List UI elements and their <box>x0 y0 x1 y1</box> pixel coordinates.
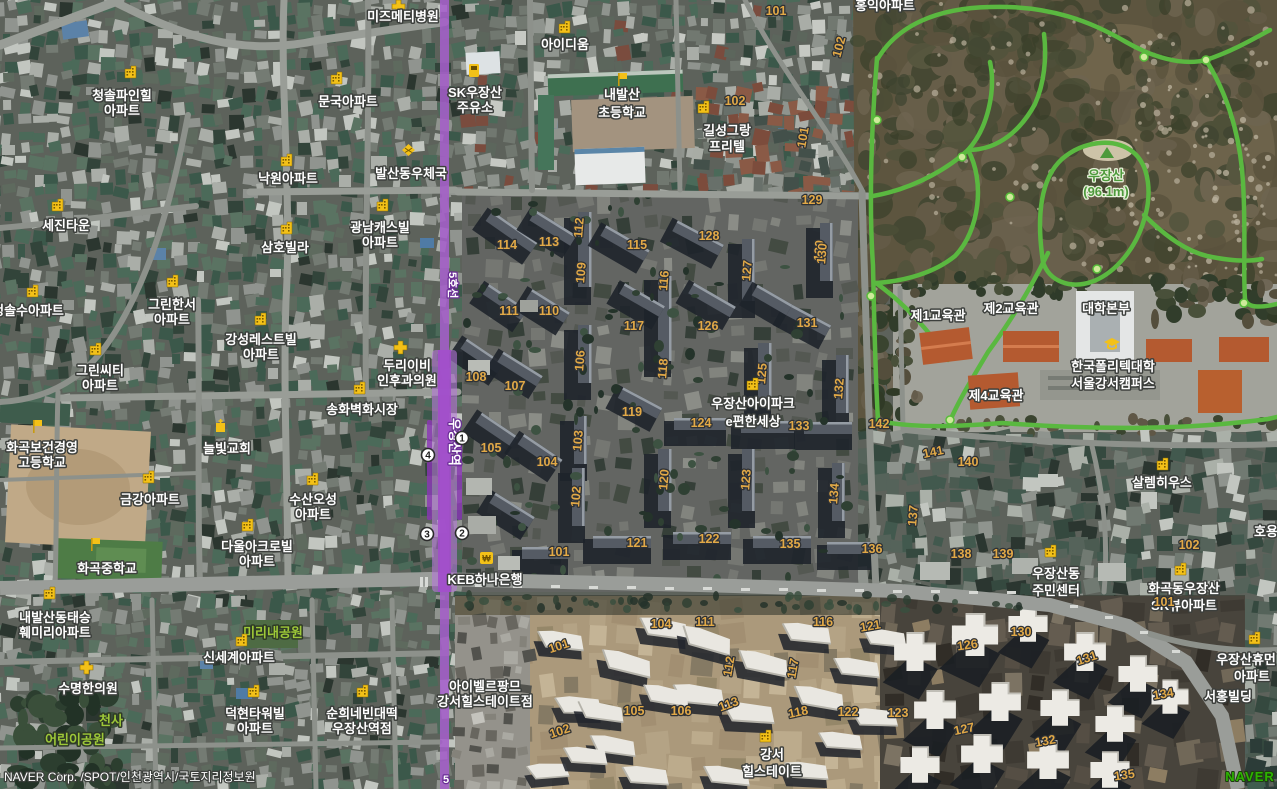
svg-text:118: 118 <box>655 358 671 379</box>
svg-text:천사: 천사 <box>99 713 123 728</box>
svg-text:135: 135 <box>1113 767 1136 784</box>
svg-text:136: 136 <box>862 542 883 556</box>
svg-text:그린한서: 그린한서 <box>148 297 196 312</box>
svg-text:서울강서캠퍼스: 서울강서캠퍼스 <box>1071 376 1155 391</box>
svg-text:101: 101 <box>766 4 787 18</box>
svg-text:123: 123 <box>738 469 754 491</box>
svg-text:발산동우체국: 발산동우체국 <box>375 166 447 181</box>
svg-text:우장산휴먼: 우장산휴먼 <box>1216 652 1276 667</box>
svg-text:대학본부: 대학본부 <box>1082 301 1130 316</box>
svg-text:아이디움: 아이디움 <box>541 37 589 52</box>
svg-text:130: 130 <box>814 243 830 265</box>
svg-text:1: 1 <box>459 434 465 445</box>
svg-text:강서힐스테이트점: 강서힐스테이트점 <box>437 694 533 709</box>
svg-text:서홍빌딩: 서홍빌딩 <box>1204 689 1252 704</box>
svg-text:청솔파인힐: 청솔파인힐 <box>92 88 152 103</box>
svg-text:NAVER: NAVER <box>1225 769 1275 784</box>
svg-text:109: 109 <box>573 262 589 284</box>
svg-text:132: 132 <box>831 378 847 400</box>
svg-text:5호선: 5호선 <box>446 272 460 298</box>
svg-text:주민센터: 주민센터 <box>1032 583 1080 598</box>
svg-text:화곡보건경영: 화곡보건경영 <box>6 440 78 455</box>
svg-text:2: 2 <box>459 529 465 540</box>
svg-text:112: 112 <box>571 217 587 238</box>
svg-text:호용: 호용 <box>1254 524 1277 539</box>
svg-text:미리내공원: 미리내공원 <box>243 625 303 640</box>
svg-text:내발산동태승: 내발산동태승 <box>19 610 91 625</box>
svg-text:113: 113 <box>539 235 559 249</box>
svg-text:122: 122 <box>699 532 720 546</box>
svg-text:142: 142 <box>869 417 890 431</box>
svg-text:화곡중학교: 화곡중학교 <box>77 561 137 576</box>
svg-text:세진타운: 세진타운 <box>42 218 90 233</box>
svg-text:108: 108 <box>466 370 487 384</box>
svg-text:고등학교: 고등학교 <box>18 455 66 470</box>
svg-text:(96.1m): (96.1m) <box>1083 184 1129 199</box>
svg-text:홍익아파트: 홍익아파트 <box>855 0 915 13</box>
svg-text:내발산: 내발산 <box>604 87 640 102</box>
svg-text:135: 135 <box>780 537 801 551</box>
svg-text:126: 126 <box>956 637 979 654</box>
svg-text:강서: 강서 <box>760 747 784 762</box>
svg-text:101: 101 <box>549 545 570 559</box>
svg-text:아파트: 아파트 <box>1234 669 1270 684</box>
svg-text:104: 104 <box>651 617 672 631</box>
svg-text:137: 137 <box>905 505 921 527</box>
svg-text:117: 117 <box>624 319 644 333</box>
svg-text:송화벽화시장: 송화벽화시장 <box>326 402 398 417</box>
svg-text:미즈메티병원: 미즈메티병원 <box>367 9 439 24</box>
svg-text:121: 121 <box>627 536 648 550</box>
svg-text:우장산아이파크: 우장산아이파크 <box>711 396 795 411</box>
svg-text:123: 123 <box>888 706 909 720</box>
svg-text:청솔수아파트: 청솔수아파트 <box>0 303 64 318</box>
svg-text:120: 120 <box>656 469 672 491</box>
svg-text:134: 134 <box>826 483 842 505</box>
svg-text:138: 138 <box>951 547 972 561</box>
svg-text:제2교육관: 제2교육관 <box>983 301 1038 316</box>
svg-text:114: 114 <box>497 238 517 252</box>
svg-text:그린씨티: 그린씨티 <box>76 363 124 378</box>
svg-text:111: 111 <box>499 304 519 318</box>
svg-text:아파트: 아파트 <box>237 721 273 736</box>
svg-text:5: 5 <box>443 774 449 786</box>
svg-text:프리텔: 프리텔 <box>709 139 745 154</box>
svg-text:102: 102 <box>568 486 584 508</box>
svg-text:116: 116 <box>656 270 672 291</box>
svg-text:금강아파트: 금강아파트 <box>120 492 180 507</box>
svg-text:수명한의원: 수명한의원 <box>58 681 118 696</box>
svg-text:130: 130 <box>1011 625 1032 639</box>
svg-text:한국폴리텍대학: 한국폴리텍대학 <box>1071 359 1155 374</box>
svg-text:126: 126 <box>698 319 719 333</box>
svg-text:122: 122 <box>838 705 859 719</box>
svg-text:111: 111 <box>695 615 715 629</box>
svg-text:115: 115 <box>627 238 647 252</box>
svg-text:102: 102 <box>725 94 746 108</box>
svg-text:SK우장산: SK우장산 <box>448 85 502 100</box>
svg-text:105: 105 <box>624 704 645 718</box>
svg-text:훼미리아파트: 훼미리아파트 <box>19 625 91 640</box>
svg-text:4: 4 <box>425 451 431 462</box>
svg-text:강성레스트빌: 강성레스트빌 <box>225 332 297 347</box>
svg-text:초등학교: 초등학교 <box>598 105 646 120</box>
svg-text:우장산역점: 우장산역점 <box>332 721 392 736</box>
svg-text:수산오성: 수산오성 <box>289 492 337 507</box>
svg-text:제1교육관: 제1교육관 <box>910 308 965 323</box>
svg-text:어린이공원: 어린이공원 <box>45 732 105 747</box>
svg-text:106: 106 <box>671 704 692 718</box>
svg-text:128: 128 <box>699 229 720 243</box>
svg-text:광남캐스빌: 광남캐스빌 <box>350 220 410 235</box>
svg-text:제4교육관: 제4교육관 <box>968 388 1023 403</box>
svg-text:106: 106 <box>572 350 588 372</box>
svg-text:102: 102 <box>1179 538 1200 552</box>
svg-text:문국아파트: 문국아파트 <box>318 94 378 109</box>
svg-text:살렘히우스: 살렘히우스 <box>1132 475 1192 490</box>
svg-text:124: 124 <box>691 416 712 430</box>
svg-text:139: 139 <box>993 547 1014 561</box>
svg-text:e편한세상: e편한세상 <box>725 414 780 429</box>
svg-text:순희네빈대떡: 순희네빈대떡 <box>326 706 398 721</box>
svg-text:아파트: 아파트 <box>82 378 118 393</box>
svg-text:낙원아파트: 낙원아파트 <box>258 171 318 186</box>
svg-text:인후과의원: 인후과의원 <box>377 373 437 388</box>
svg-text:두리이비: 두리이비 <box>383 358 431 373</box>
svg-text:110: 110 <box>539 304 559 318</box>
svg-text:아파트: 아파트 <box>239 554 275 569</box>
svg-text:아파트: 아파트 <box>295 507 331 522</box>
svg-text:길성그랑: 길성그랑 <box>703 123 751 138</box>
svg-text:133: 133 <box>789 419 810 433</box>
svg-text:107: 107 <box>505 379 526 393</box>
svg-text:화곡동우장산: 화곡동우장산 <box>1148 581 1220 596</box>
svg-text:127: 127 <box>739 260 755 282</box>
svg-text:131: 131 <box>797 316 818 330</box>
svg-text:힐스테이트: 힐스테이트 <box>742 764 802 779</box>
svg-text:103: 103 <box>570 430 586 452</box>
svg-text:다울아크로빌: 다울아크로빌 <box>221 539 293 554</box>
svg-text:아파트: 아파트 <box>154 312 190 327</box>
svg-text:신세계아파트: 신세계아파트 <box>203 650 275 665</box>
svg-text:101: 101 <box>1154 595 1175 609</box>
svg-text:104: 104 <box>537 455 558 469</box>
svg-text:KEB하나은행: KEB하나은행 <box>447 572 522 587</box>
svg-text:3: 3 <box>424 530 430 541</box>
svg-text:아파트: 아파트 <box>243 347 279 362</box>
svg-text:아이벨르팡므: 아이벨르팡므 <box>449 679 521 694</box>
svg-text:129: 129 <box>802 193 823 207</box>
svg-text:덕현타워빌: 덕현타워빌 <box>225 706 285 721</box>
svg-text:105: 105 <box>481 441 502 455</box>
svg-text:아파트: 아파트 <box>362 235 398 250</box>
svg-text:아파트: 아파트 <box>104 103 140 118</box>
svg-text:삼호빌라: 삼호빌라 <box>261 240 309 255</box>
svg-text:119: 119 <box>622 405 642 419</box>
svg-text:주유소: 주유소 <box>457 100 493 115</box>
svg-text:116: 116 <box>813 615 833 629</box>
svg-text:우장산동: 우장산동 <box>1032 566 1080 581</box>
svg-text:NAVER Corp. /SPOT/인천광역시/국토지리정보: NAVER Corp. /SPOT/인천광역시/국토지리정보원 <box>4 769 256 784</box>
svg-text:늘빛교회: 늘빛교회 <box>203 441 251 456</box>
svg-text:우장산: 우장산 <box>1088 168 1124 183</box>
svg-text:140: 140 <box>958 455 979 469</box>
